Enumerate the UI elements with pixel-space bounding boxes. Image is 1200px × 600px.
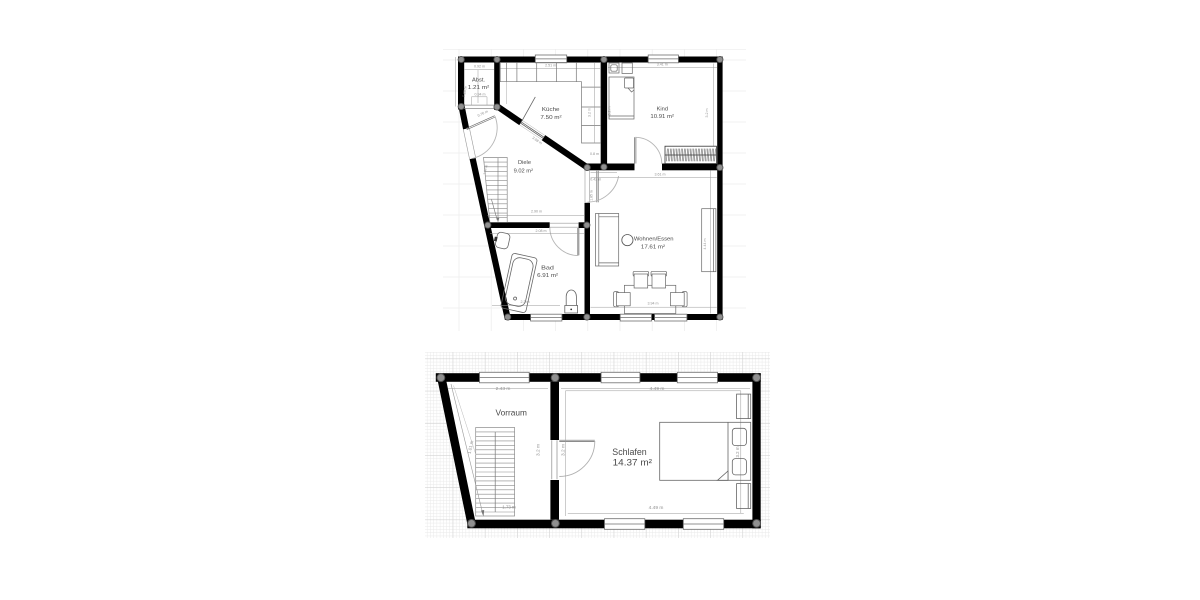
svg-text:6.91 m²: 6.91 m² [537, 273, 558, 279]
svg-text:Vorraum: Vorraum [496, 408, 527, 418]
svg-text:17.61 m²: 17.61 m² [641, 244, 665, 250]
svg-text:Küche: Küche [542, 107, 560, 113]
svg-text:3.94 m: 3.94 m [648, 302, 659, 306]
svg-text:4.44 m: 4.44 m [703, 239, 707, 250]
svg-text:3.2 m: 3.2 m [705, 109, 709, 118]
svg-text:3.2 m: 3.2 m [560, 444, 566, 456]
svg-text:0.42 m: 0.42 m [590, 177, 601, 181]
svg-text:2.08 m: 2.08 m [536, 229, 547, 233]
svg-text:4.49 m: 4.49 m [650, 386, 665, 392]
svg-text:14.37 m²: 14.37 m² [613, 457, 652, 468]
svg-text:2.43 m: 2.43 m [496, 386, 511, 392]
svg-text:0.92 m: 0.92 m [474, 65, 485, 69]
svg-text:Schlafen: Schlafen [612, 446, 646, 457]
svg-text:3.2 m: 3.2 m [536, 444, 542, 456]
svg-text:Wohnen/Essen: Wohnen/Essen [634, 237, 674, 243]
svg-text:Bad: Bad [541, 266, 554, 272]
svg-text:Abst.: Abst. [472, 78, 485, 84]
svg-text:0.8 m: 0.8 m [590, 152, 599, 156]
svg-text:Kind: Kind [657, 107, 668, 113]
svg-text:9.02 m²: 9.02 m² [514, 169, 533, 175]
svg-text:0.94 m: 0.94 m [475, 92, 486, 96]
svg-text:2.51 m: 2.51 m [545, 64, 556, 68]
svg-text:1.21 m²: 1.21 m² [468, 85, 490, 91]
svg-text:1.85 m: 1.85 m [589, 190, 593, 201]
svg-text:4.49 m: 4.49 m [649, 505, 664, 511]
svg-text:3.61 m: 3.61 m [655, 173, 666, 177]
svg-text:10.91 m²: 10.91 m² [650, 114, 674, 120]
svg-text:3.2 m: 3.2 m [588, 108, 592, 117]
svg-text:Diele: Diele [518, 160, 531, 166]
svg-text:3.41 m: 3.41 m [657, 63, 668, 67]
svg-text:7.50 m²: 7.50 m² [540, 115, 561, 121]
svg-text:2.90 m: 2.90 m [531, 210, 542, 214]
svg-text:3.2 m: 3.2 m [735, 446, 740, 457]
svg-text:1.73 m: 1.73 m [502, 505, 516, 510]
